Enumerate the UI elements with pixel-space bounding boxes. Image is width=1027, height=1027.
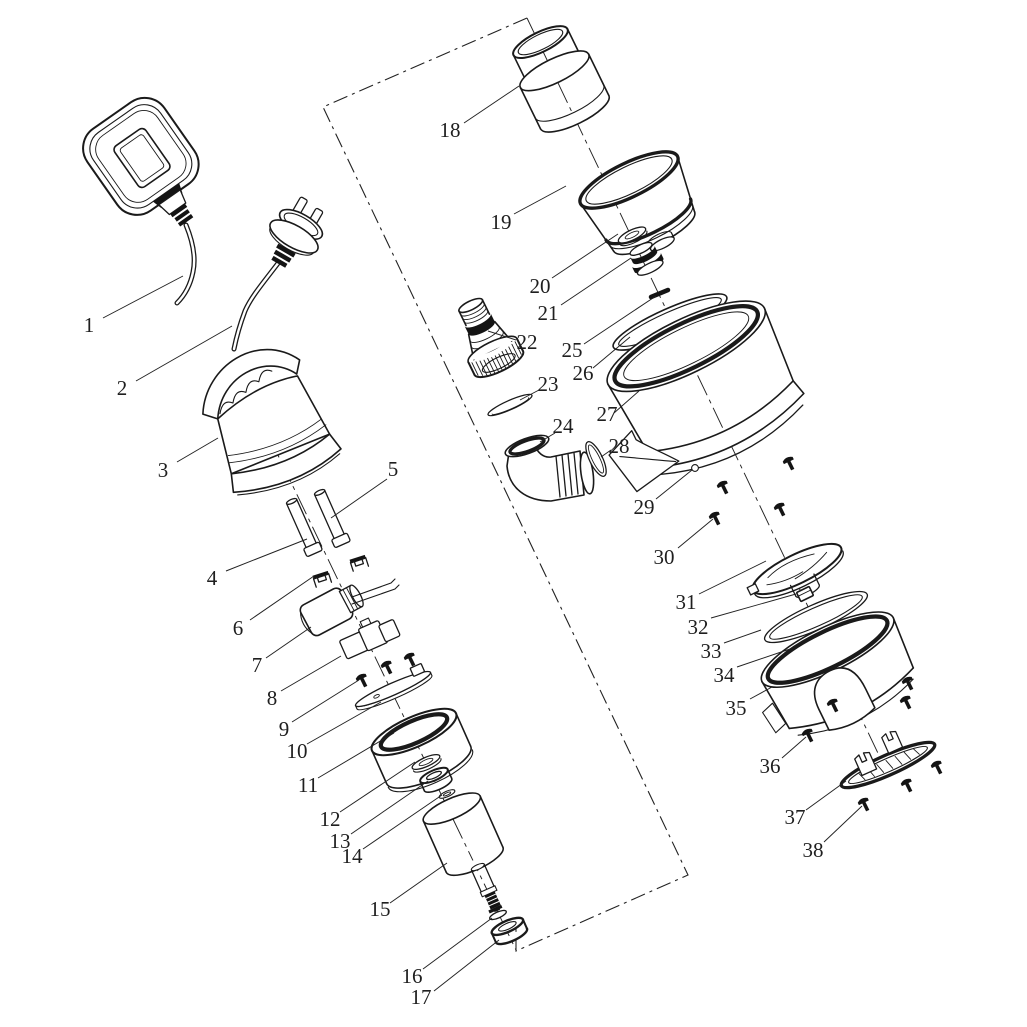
- part-29-ball: [692, 465, 699, 472]
- callout-4: 4: [207, 566, 218, 590]
- leader-line-7: [266, 627, 311, 658]
- callout-32: 32: [688, 615, 709, 639]
- callout-8: 8: [267, 686, 278, 710]
- callout-19: 19: [491, 210, 512, 234]
- callout-36: 36: [760, 754, 781, 778]
- leader-line-18: [464, 86, 519, 123]
- leader-line-37: [806, 781, 846, 810]
- callout-5: 5: [388, 457, 399, 481]
- leader-line-2: [136, 326, 232, 381]
- callout-28: 28: [609, 434, 630, 458]
- callout-26: 26: [573, 361, 594, 385]
- callout-3: 3: [158, 458, 169, 482]
- callout-2: 2: [117, 376, 128, 400]
- callout-21: 21: [538, 301, 559, 325]
- part-3-top-cover-handle: [187, 334, 346, 504]
- leader-line-10: [307, 702, 381, 744]
- callout-9: 9: [279, 717, 290, 741]
- leader-line-5: [331, 479, 387, 518]
- callout-12: 12: [320, 807, 341, 831]
- callout-22: 22: [517, 330, 538, 354]
- callout-11: 11: [298, 773, 318, 797]
- leader-line-38: [824, 806, 862, 842]
- part-37-strainer-plate: [829, 717, 938, 795]
- diagram-canvas: 1234567891011121314151617181920212223242…: [0, 0, 1027, 1027]
- callout-35: 35: [726, 696, 747, 720]
- callout-15: 15: [370, 897, 391, 921]
- part-18-hose-connector: [502, 16, 614, 139]
- part-5-bolt: [311, 487, 351, 548]
- callout-27: 27: [597, 402, 618, 426]
- leader-line-15: [390, 863, 447, 903]
- callout-31: 31: [676, 590, 697, 614]
- part-2-power-plug: [234, 190, 336, 349]
- callout-37: 37: [785, 805, 806, 829]
- callout-23: 23: [538, 372, 559, 396]
- callout-29: 29: [634, 495, 655, 519]
- leader-line-20: [552, 234, 618, 278]
- part-1-float-switch: [74, 88, 226, 303]
- part-23-gasket: [486, 391, 534, 419]
- callout-7: 7: [252, 653, 263, 677]
- callout-24: 24: [553, 414, 575, 438]
- part-15-rotor-shaft: [419, 787, 525, 924]
- leader-line-4: [226, 539, 307, 571]
- leader-line-30: [678, 519, 713, 548]
- leader-line-17: [434, 940, 499, 991]
- part-24-elbow-fitting: [503, 431, 596, 501]
- callout-1: 1: [84, 313, 95, 337]
- callout-38: 38: [803, 838, 824, 862]
- part-4-bolt: [283, 496, 323, 557]
- part-10-bearing-plate: [351, 661, 435, 714]
- leader-lines: [103, 86, 862, 991]
- callout-33: 33: [701, 639, 722, 663]
- leader-line-3: [177, 438, 218, 462]
- leader-line-9: [292, 680, 359, 722]
- callout-6: 6: [233, 616, 244, 640]
- callout-10: 10: [287, 739, 308, 763]
- callout-34: 34: [714, 663, 736, 687]
- leader-line-16: [423, 918, 492, 969]
- leader-line-33: [724, 630, 761, 643]
- leader-line-1: [103, 276, 183, 318]
- callout-30: 30: [654, 545, 675, 569]
- exploded-parts-diagram: 1234567891011121314151617181920212223242…: [0, 0, 1027, 1027]
- leader-line-32: [711, 594, 796, 618]
- leader-line-36: [782, 737, 806, 758]
- callout-14: 14: [342, 844, 364, 868]
- leader-line-8: [281, 656, 341, 691]
- part-6-cable-clip: [313, 571, 332, 587]
- callout-20: 20: [530, 274, 551, 298]
- leader-line-19: [514, 186, 566, 214]
- part-22-hose-adapter: [445, 290, 527, 383]
- callout-17: 17: [411, 985, 432, 1009]
- callout-18: 18: [440, 118, 461, 142]
- callout-25: 25: [562, 338, 583, 362]
- part-6-cable-clip: [350, 555, 369, 571]
- power-cord: [234, 262, 279, 349]
